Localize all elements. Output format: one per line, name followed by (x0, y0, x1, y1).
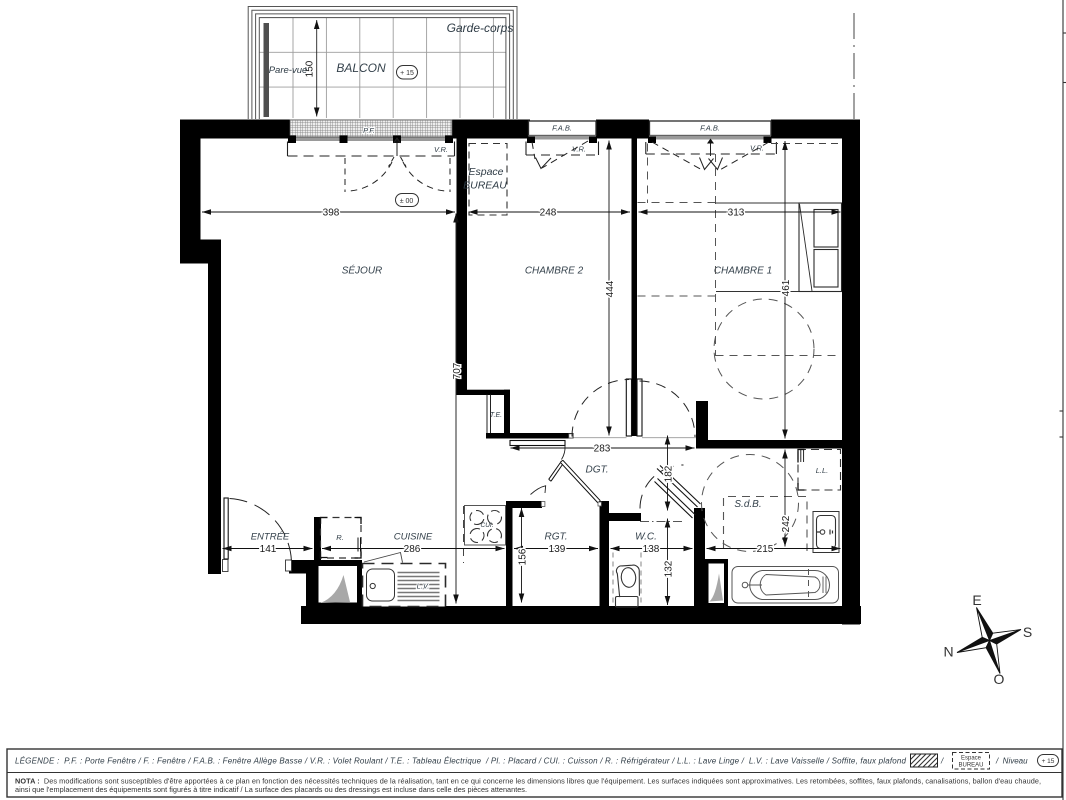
svg-text:248: 248 (540, 208, 557, 219)
svg-text:707: 707 (452, 362, 463, 379)
svg-text:/ Niveau: / Niveau (995, 757, 1028, 766)
svg-text:461: 461 (781, 279, 792, 296)
svg-text:+ 15: + 15 (1042, 758, 1055, 765)
svg-text:DGT.: DGT. (586, 465, 609, 476)
svg-text:± 00: ± 00 (400, 198, 414, 205)
svg-text:Espace: Espace (468, 166, 503, 178)
svg-text:O: O (994, 671, 1005, 687)
svg-text:S.d.B.: S.d.B. (734, 499, 761, 510)
svg-text:+ 15: + 15 (400, 70, 414, 77)
svg-text:398: 398 (323, 208, 340, 219)
svg-text:V.R.: V.R. (434, 145, 448, 154)
svg-text:F.A.B.: F.A.B. (700, 124, 720, 133)
svg-text:141: 141 (260, 544, 277, 555)
svg-text:BALCON: BALCON (336, 61, 386, 75)
svg-text:139: 139 (549, 544, 566, 555)
svg-text:286: 286 (404, 544, 421, 555)
svg-text:156: 156 (518, 548, 529, 565)
svg-text:ENTRÉE: ENTRÉE (251, 532, 290, 543)
svg-text:SÉJOUR: SÉJOUR (342, 264, 383, 277)
svg-text:R.: R. (336, 533, 344, 542)
svg-text:L.L.: L.L. (816, 466, 829, 475)
svg-text:283: 283 (594, 444, 611, 455)
svg-text:L.V.: L.V. (417, 582, 430, 591)
svg-text:BUREAU: BUREAU (958, 763, 983, 769)
svg-text:313: 313 (728, 208, 745, 219)
svg-text:ainsi que l'emplacement des éq: ainsi que l'emplacement des équipements … (15, 785, 527, 794)
svg-text:Espace: Espace (961, 756, 982, 762)
svg-text:S: S (1023, 624, 1032, 640)
svg-text:F.A.B.: F.A.B. (552, 124, 572, 133)
svg-text:182: 182 (664, 465, 675, 482)
svg-text:W.C.: W.C. (635, 532, 657, 543)
svg-text:LÉGENDE : P.F. : Porte Fenêtr: LÉGENDE : P.F. : Porte Fenêtre / F. : Fe… (15, 757, 907, 766)
svg-text:Pare-vue: Pare-vue (269, 65, 308, 76)
svg-text:CUI.: CUI. (481, 522, 494, 529)
svg-text:BUREAU: BUREAU (463, 180, 507, 192)
svg-text:138: 138 (643, 544, 660, 555)
svg-text:RGT.: RGT. (545, 532, 568, 543)
svg-text:132: 132 (664, 560, 675, 577)
svg-text:Garde-corps: Garde-corps (447, 21, 514, 35)
svg-text:CHAMBRE 1: CHAMBRE 1 (714, 266, 772, 277)
svg-text:CHAMBRE 2: CHAMBRE 2 (525, 266, 584, 277)
svg-text:N: N (943, 644, 953, 660)
svg-text:V.R.: V.R. (750, 144, 764, 153)
svg-text:444: 444 (605, 280, 616, 297)
svg-text:T.E.: T.E. (490, 412, 502, 419)
svg-text:CUISINE: CUISINE (394, 532, 433, 543)
svg-text:215: 215 (757, 544, 774, 555)
svg-text:E: E (972, 592, 981, 608)
svg-text:P.F.: P.F. (363, 126, 375, 135)
svg-text:242: 242 (781, 515, 792, 532)
